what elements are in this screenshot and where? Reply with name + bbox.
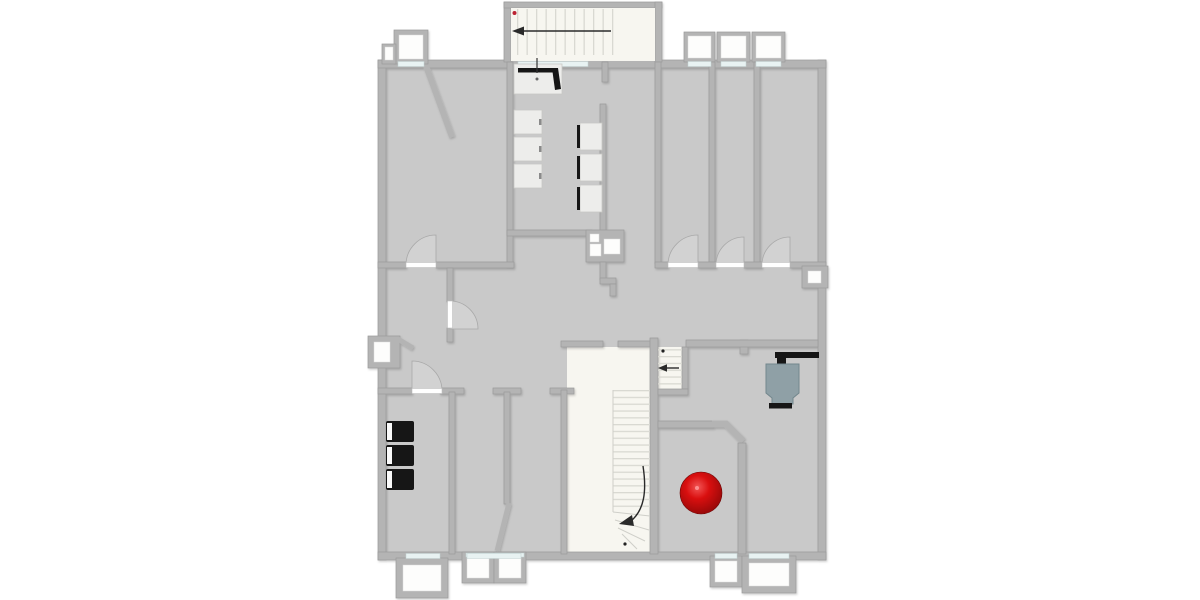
white-desks-left xyxy=(514,110,542,188)
wall-stairwell-left xyxy=(561,390,567,554)
sphere-highlight xyxy=(695,486,699,490)
black-dot-marker-landing xyxy=(661,349,664,352)
landing-staircase xyxy=(658,349,682,387)
wall-ne-room1-left xyxy=(655,62,661,264)
red-sphere xyxy=(680,472,722,514)
floor-plan xyxy=(0,0,1200,600)
wall-sw-partition1 xyxy=(449,392,455,554)
red-dot-marker-top xyxy=(513,11,517,15)
wall-sw-partition2 xyxy=(504,392,510,504)
wall-sphere-room-right xyxy=(738,443,746,554)
wall-box-right xyxy=(802,266,828,288)
floor-plan-canvas xyxy=(0,0,1200,600)
outer-wall-right xyxy=(818,60,826,560)
screen-icon xyxy=(577,187,580,210)
black-dot-marker-stairwell xyxy=(623,542,626,545)
screen-icon xyxy=(577,156,580,179)
wall-ne-room3-left xyxy=(754,62,760,264)
wall-topleft-room-right xyxy=(507,62,513,268)
duct-shaft xyxy=(586,230,624,262)
wall-stairwell-right xyxy=(650,338,658,554)
wall-midleft-upper xyxy=(447,268,453,302)
black-cabinets xyxy=(386,421,414,490)
white-desks-right xyxy=(577,123,602,212)
wall-ne-room2-left xyxy=(709,62,715,264)
top-staircase-treads xyxy=(517,9,616,55)
outer-wall-left xyxy=(378,60,386,560)
wall-pianoroom-bottom xyxy=(507,230,592,236)
top-staircase xyxy=(511,8,655,61)
screen-icon xyxy=(577,125,580,148)
wall-sphere-room-top xyxy=(658,421,714,428)
wall-right-room-top xyxy=(686,340,818,347)
